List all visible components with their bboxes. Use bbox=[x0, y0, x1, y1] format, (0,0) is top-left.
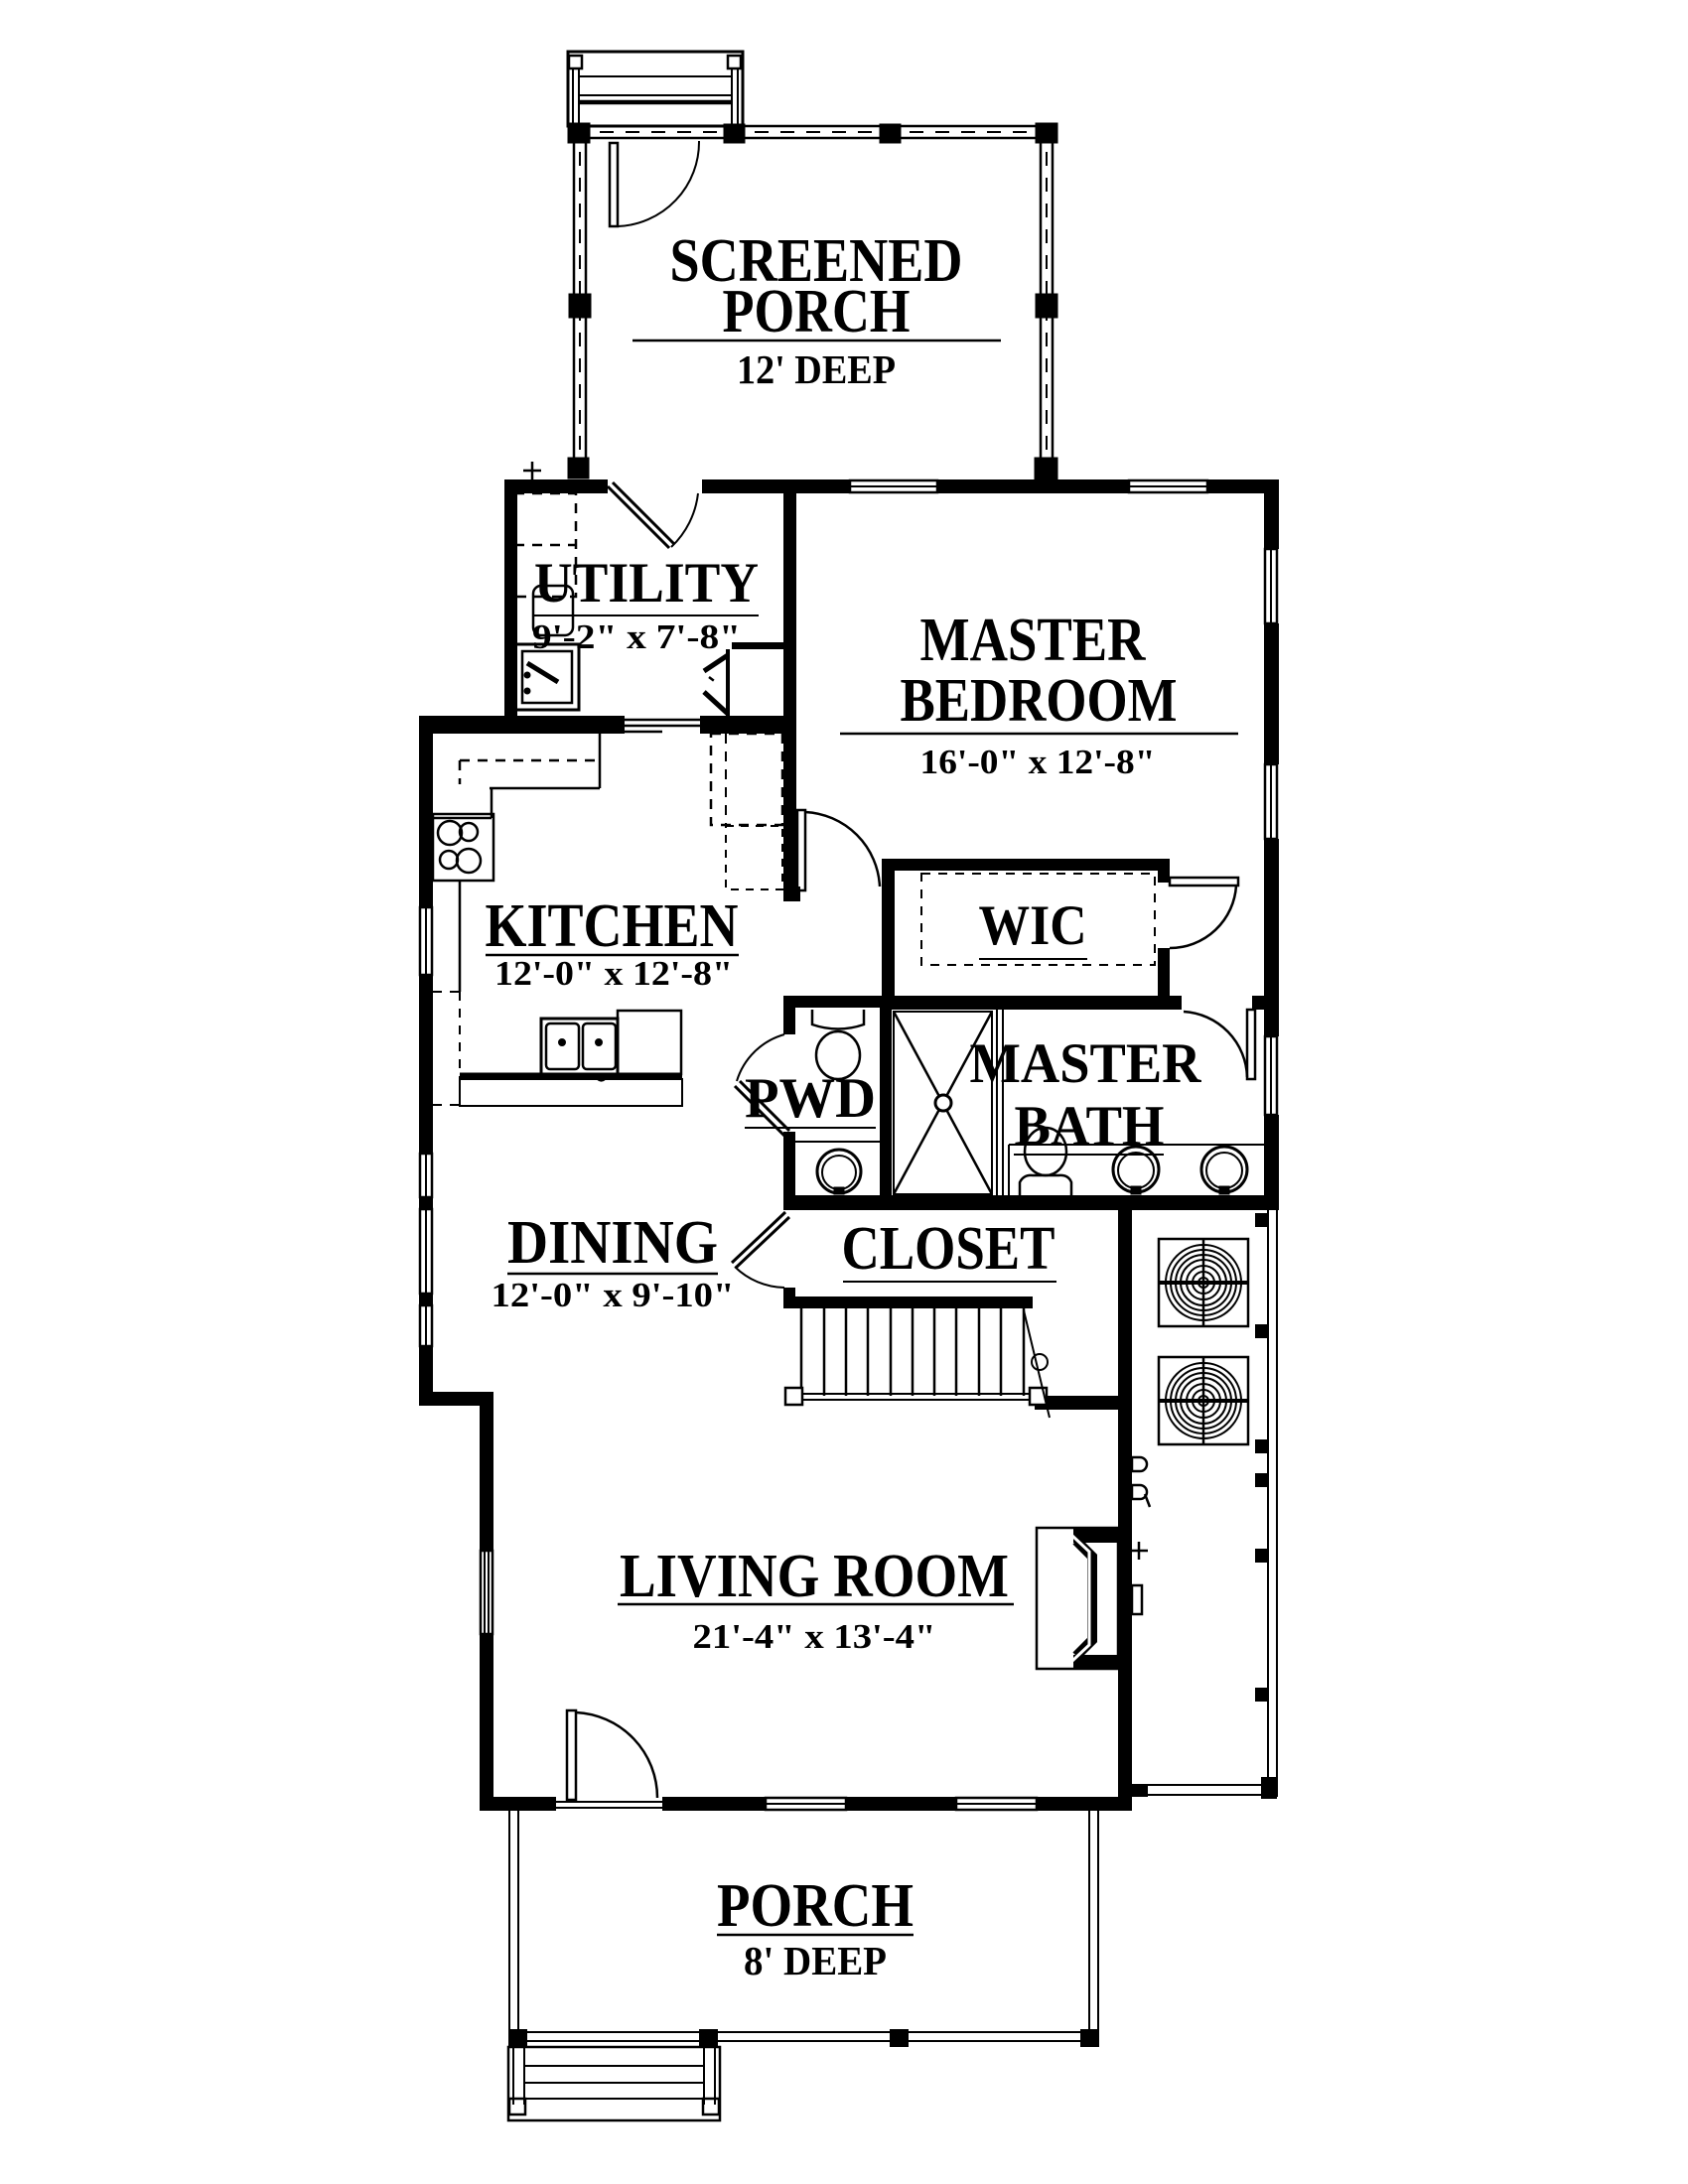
svg-text:12'-0" x 12'-8": 12'-0" x 12'-8" bbox=[494, 954, 733, 993]
svg-text:BATH: BATH bbox=[1015, 1095, 1165, 1158]
svg-text:PORCH: PORCH bbox=[717, 1872, 914, 1940]
svg-text:MASTER: MASTER bbox=[920, 607, 1147, 674]
svg-text:LIVING ROOM: LIVING ROOM bbox=[620, 1543, 1009, 1610]
svg-text:PWD: PWD bbox=[745, 1067, 876, 1130]
svg-text:WIC: WIC bbox=[979, 894, 1087, 957]
svg-text:DINING: DINING bbox=[507, 1209, 718, 1277]
svg-text:8' DEEP: 8' DEEP bbox=[744, 1938, 887, 1983]
svg-text:9'-2" x 7'-8": 9'-2" x 7'-8" bbox=[532, 617, 741, 656]
svg-text:21'-4" x 13'-4": 21'-4" x 13'-4" bbox=[693, 1617, 936, 1656]
svg-text:BEDROOM: BEDROOM bbox=[901, 667, 1178, 735]
svg-text:12' DEEP: 12' DEEP bbox=[737, 346, 896, 392]
svg-text:MASTER: MASTER bbox=[970, 1032, 1202, 1095]
svg-text:UTILITY: UTILITY bbox=[534, 552, 759, 614]
svg-text:PORCH: PORCH bbox=[723, 278, 911, 345]
svg-text:12'-0" x 9'-10": 12'-0" x 9'-10" bbox=[492, 1276, 735, 1314]
svg-text:16'-0" x 12'-8": 16'-0" x 12'-8" bbox=[920, 743, 1156, 781]
svg-text:KITCHEN: KITCHEN bbox=[486, 892, 739, 960]
svg-text:CLOSET: CLOSET bbox=[842, 1215, 1055, 1283]
